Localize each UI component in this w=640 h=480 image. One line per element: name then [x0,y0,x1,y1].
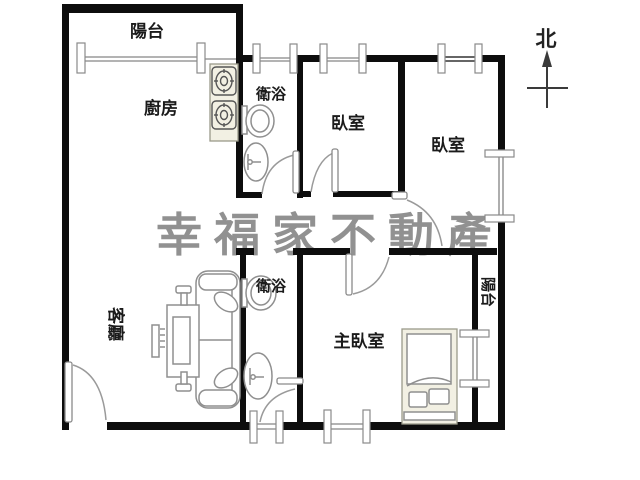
bathroom-top-window-icon [253,44,297,73]
entry-door-icon [65,362,106,422]
bedroom2-door-icon [392,192,442,246]
kitchen-label: 廚房 [144,98,178,118]
bedroom1-door-icon [311,149,338,192]
master-right-window-icon [460,330,489,387]
bedroom2-top-window-icon [438,44,482,73]
bed-icon [402,329,457,424]
bathroom-bottom-window-icon [250,411,283,443]
balcony-top-label: 陽台 [130,21,164,41]
bathroom-top-label: 衛浴 [255,85,287,103]
sink-icon [244,143,268,181]
master-bedroom-door-icon [346,254,389,295]
bathroom-bottom-label: 衛浴 [255,277,287,295]
bedroom2-right-window-icon [485,150,514,222]
living-room-label: 客廳 [106,306,126,341]
sink-icon [244,353,272,399]
master-bedroom-label: 主臥室 [334,331,385,351]
bedroom2-label: 臥室 [431,135,465,155]
sofa-icon [196,271,241,408]
floor-plan-drawing: 北 陽台 廚房 衛浴 臥室 臥室 客廳 衛浴 主臥室 陽台 [0,0,640,480]
north-label: 北 [536,28,557,51]
toilet-icon [242,105,274,137]
tv-icon [152,325,165,357]
bedroom1-label: 臥室 [331,113,365,133]
balcony-right-label: 陽台 [479,277,497,307]
bedroom1-window-icon [320,44,366,73]
coffee-table-icon [167,286,199,391]
floor-plan: 幸福家不動產 [0,0,640,480]
master-bottom-window-icon [324,410,370,443]
north-arrow-icon: 北 [527,28,568,108]
stove-icon [210,64,238,141]
